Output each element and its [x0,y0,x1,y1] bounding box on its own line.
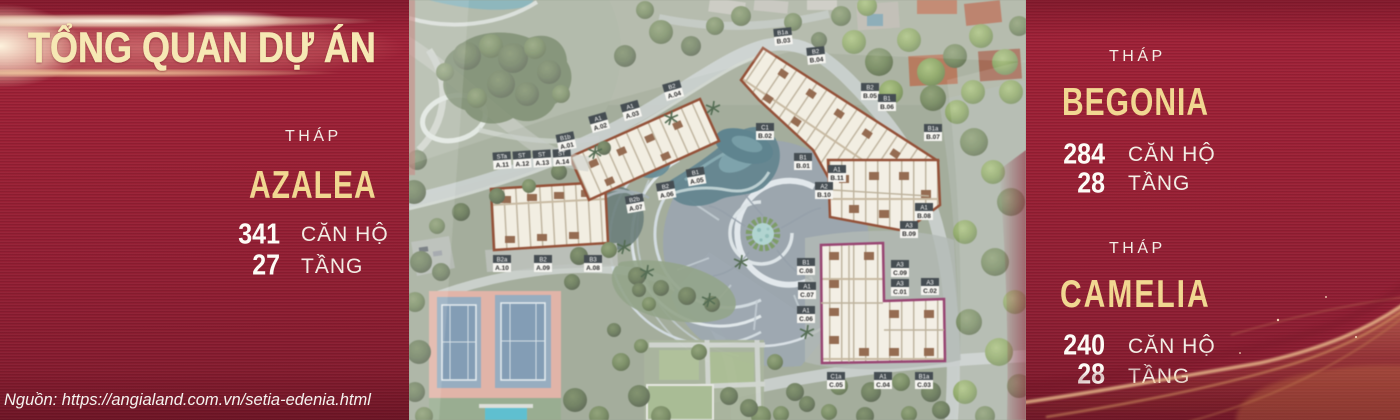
svg-text:B.11: B.11 [830,175,844,182]
svg-text:A.08: A.08 [586,265,600,272]
svg-text:C.02: C.02 [923,288,937,295]
svg-text:B1: B1 [802,260,810,266]
svg-text:A1: A1 [833,167,841,173]
svg-text:A.14: A.14 [555,158,570,166]
svg-text:B.04: B.04 [809,56,824,64]
svg-text:C.04: C.04 [876,382,890,389]
svg-text:ST: ST [558,151,566,158]
svg-text:C1: C1 [761,125,769,131]
svg-text:A1: A1 [920,205,928,211]
svg-text:B1a: B1a [919,374,930,380]
svg-text:B.06: B.06 [880,104,894,111]
svg-text:ST: ST [518,153,526,160]
svg-text:A3: A3 [896,281,904,287]
svg-text:A.11: A.11 [495,162,509,170]
svg-text:B1: B1 [799,155,807,161]
svg-text:C.09: C.09 [893,270,907,277]
svg-text:C.05: C.05 [829,382,843,389]
svg-text:B2: B2 [539,257,547,263]
svg-text:C1a: C1a [830,374,842,380]
svg-text:C.01: C.01 [893,289,907,296]
svg-text:A1: A1 [802,308,810,314]
svg-text:A1: A1 [879,374,887,380]
svg-text:B.03: B.03 [776,37,791,45]
svg-text:C.07: C.07 [800,292,814,299]
svg-text:A2: A2 [820,184,828,190]
svg-text:B2: B2 [812,49,821,56]
svg-text:A1: A1 [803,284,811,290]
svg-text:C.03: C.03 [917,382,931,389]
svg-text:B.07: B.07 [926,134,940,141]
svg-text:A.12: A.12 [515,160,530,168]
svg-text:A.09: A.09 [536,265,550,272]
svg-text:C.06: C.06 [799,316,813,323]
svg-text:A.13: A.13 [535,159,550,167]
svg-text:STa: STa [496,154,507,161]
svg-text:B.02: B.02 [758,133,772,140]
svg-text:A3: A3 [905,223,913,229]
svg-text:B.09: B.09 [902,231,916,238]
svg-text:A.10: A.10 [495,265,509,272]
svg-text:A3: A3 [896,262,904,268]
svg-text:B2: B2 [866,85,874,91]
svg-text:B.08: B.08 [917,213,931,220]
svg-text:B.01: B.01 [796,163,810,170]
svg-text:B.05: B.05 [863,93,877,100]
svg-text:B2a: B2a [497,257,508,263]
svg-text:B3: B3 [589,257,597,263]
svg-text:B1a: B1a [777,30,789,37]
svg-text:C.08: C.08 [799,268,813,275]
svg-text:ST: ST [538,152,546,159]
svg-text:B1a: B1a [928,126,939,132]
svg-text:B1: B1 [883,96,891,102]
svg-text:A3: A3 [926,280,934,286]
svg-text:B.10: B.10 [817,192,831,199]
